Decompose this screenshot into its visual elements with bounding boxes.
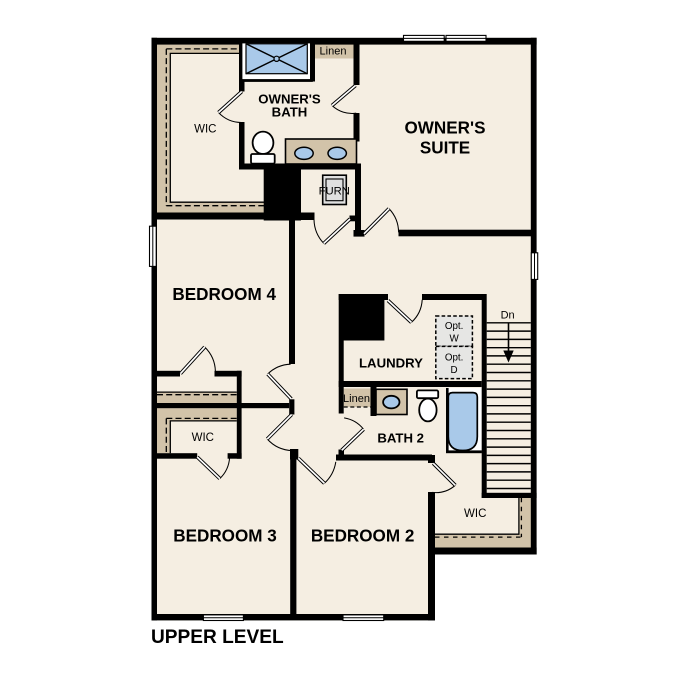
svg-text:LAUNDRY: LAUNDRY [359,356,423,371]
svg-text:Dn: Dn [501,310,515,322]
svg-text:BEDROOM 4: BEDROOM 4 [172,285,276,304]
svg-text:SUITE: SUITE [420,139,470,158]
svg-text:WIC: WIC [464,508,486,520]
svg-text:BATH 2: BATH 2 [377,430,424,445]
svg-text:Linen: Linen [320,46,347,58]
svg-text:FURN: FURN [319,185,350,197]
svg-text:WIC: WIC [194,123,216,135]
svg-text:WIC: WIC [192,432,214,444]
svg-text:Opt.: Opt. [445,353,464,364]
svg-text:W: W [449,334,459,345]
svg-text:UPPER LEVEL: UPPER LEVEL [151,627,284,648]
svg-text:D: D [451,365,458,376]
svg-text:OWNER'S: OWNER'S [405,119,486,138]
svg-text:BEDROOM 3: BEDROOM 3 [173,527,277,546]
svg-text:Linen: Linen [343,393,370,405]
svg-text:Opt.: Opt. [445,321,464,332]
svg-text:BATH: BATH [272,105,308,120]
svg-text:BEDROOM 2: BEDROOM 2 [311,527,415,546]
